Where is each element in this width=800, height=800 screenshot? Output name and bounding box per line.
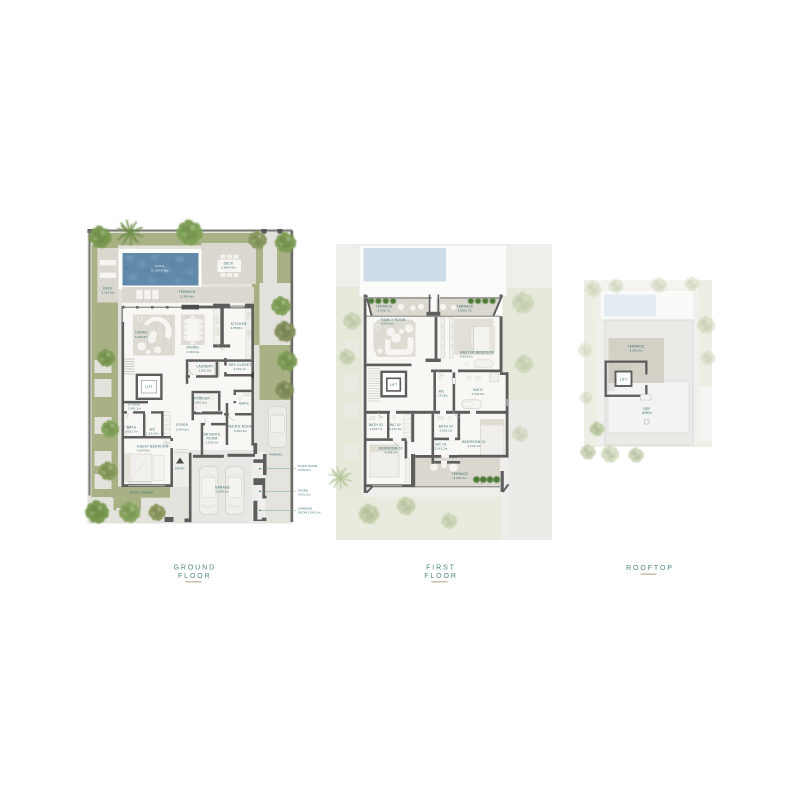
svg-text:3.1X1.8m: 3.1X1.8m (102, 290, 115, 294)
svg-text:2.9X2.2m: 2.9X2.2m (440, 428, 453, 432)
svg-text:4.2X4.0m: 4.2X4.0m (137, 448, 150, 452)
svg-text:2.0X1.2m: 2.0X1.2m (435, 446, 448, 450)
svg-text:4.4X3.0m: 4.4X3.0m (187, 350, 200, 354)
svg-text:BEDROOM 02: BEDROOM 02 (379, 447, 402, 451)
svg-text:4.2X4.3m: 4.2X4.3m (468, 444, 481, 448)
svg-text:DRY CLOSET: DRY CLOSET (229, 363, 252, 367)
svg-text:1.2X1.6m: 1.2X1.6m (389, 427, 402, 431)
svg-text:ROOM 1.0X1.0m: ROOM 1.0X1.0m (298, 510, 321, 514)
svg-text:LIFT: LIFT (620, 378, 628, 382)
svg-text:ROOM: ROOM (207, 436, 218, 440)
svg-text:TERRACE: TERRACE (628, 345, 645, 349)
svg-text:BATH: BATH (127, 425, 137, 429)
svg-text:PLANT ROOM: PLANT ROOM (298, 464, 318, 468)
svg-text:BEDROOM 01: BEDROOM 01 (462, 440, 485, 444)
svg-text:WC 02: WC 02 (390, 423, 401, 427)
svg-text:4.5X3.5m: 4.5X3.5m (472, 392, 485, 396)
svg-text:5.68X4.6m: 5.68X4.6m (221, 266, 236, 270)
svg-text:KITCHEN: KITCHEN (231, 322, 247, 326)
svg-text:2.0X4.5m: 2.0X4.5m (176, 427, 189, 431)
svg-text:GARAGE: GARAGE (215, 486, 230, 490)
svg-text:5.8X5.0m: 5.8X5.0m (460, 354, 473, 358)
svg-text:LIVING: LIVING (135, 331, 147, 335)
svg-text:2.0X1.7m: 2.0X1.7m (125, 429, 138, 433)
svg-text:BATH 03: BATH 03 (439, 425, 453, 429)
svg-text:GUEST BEDROOM: GUEST BEDROOM (137, 444, 169, 448)
svg-text:ROOFTOP: ROOFTOP (626, 565, 674, 572)
svg-text:FOYER: FOYER (176, 423, 189, 427)
svg-text:BATH: BATH (239, 402, 249, 406)
svg-text:3.4X3.3m: 3.4X3.3m (234, 429, 247, 433)
svg-text:1.7X1.8m: 1.7X1.8m (435, 393, 448, 397)
svg-text:STORE: STORE (298, 488, 308, 492)
svg-text:MAID'S ROOM: MAID'S ROOM (228, 425, 252, 429)
svg-text:PARKING: PARKING (270, 453, 283, 457)
svg-text:DECK: DECK (224, 262, 234, 266)
svg-text:3.5X2.0m: 3.5X2.0m (206, 440, 219, 444)
svg-text:6.3X6.3m: 6.3X6.3m (216, 490, 229, 494)
svg-text:6.2X1.7m: 6.2X1.7m (378, 308, 391, 312)
svg-text:3.85X5m: 3.85X5m (231, 326, 243, 330)
svg-text:5.0X5.8m: 5.0X5.8m (135, 335, 148, 339)
svg-text:DINING: DINING (187, 346, 200, 350)
svg-text:ENTRY: ENTRY (175, 467, 185, 471)
svg-text:FRONT GARDEN: FRONT GARDEN (130, 491, 153, 495)
svg-text:LIFT: LIFT (145, 385, 153, 389)
svg-text:8.9X2.3m: 8.9X2.3m (454, 476, 467, 480)
svg-text:GROUND: GROUND (174, 564, 217, 571)
svg-text:2.5X1.6m: 2.5X1.6m (194, 401, 207, 405)
svg-text:11.9X3.4m: 11.9X3.4m (180, 295, 195, 299)
svg-text:6.0X4.2m: 6.0X4.2m (381, 322, 394, 326)
svg-text:TERRACE: TERRACE (457, 305, 474, 309)
svg-text:TERRACE: TERRACE (452, 472, 469, 476)
svg-text:FIRST: FIRST (426, 564, 456, 571)
svg-text:POOL: POOL (155, 264, 165, 268)
svg-text:LAUNDRY: LAUNDRY (197, 365, 215, 369)
svg-text:FLOOR: FLOOR (424, 573, 458, 580)
svg-text:2.2X1.4m: 2.2X1.4m (234, 367, 247, 371)
svg-text:6.08X1.7m: 6.08X1.7m (458, 308, 473, 312)
svg-text:AREA: AREA (642, 411, 652, 415)
svg-text:2.0X2.7m: 2.0X2.7m (370, 427, 383, 431)
svg-text:1.2X1.6m: 1.2X1.6m (146, 432, 159, 436)
svg-text:MASTER BEDROOM: MASTER BEDROOM (460, 351, 494, 355)
svg-text:FLOOR: FLOOR (178, 573, 212, 580)
svg-text:4.0X1.0m: 4.0X1.0m (298, 492, 311, 496)
svg-text:TERRACE: TERRACE (179, 290, 196, 294)
svg-text:WC 03: WC 03 (436, 443, 447, 447)
svg-text:WC: WC (150, 428, 156, 432)
svg-text:WC: WC (439, 390, 445, 394)
svg-text:4.0X2.0m: 4.0X2.0m (298, 468, 311, 472)
svg-text:2.8X1.8m: 2.8X1.8m (199, 369, 212, 373)
svg-text:LIFT: LIFT (390, 383, 398, 387)
svg-text:TERRACE: TERRACE (376, 305, 393, 309)
svg-text:2.9X1.2m: 2.9X1.2m (128, 407, 141, 411)
svg-text:BATH 02: BATH 02 (369, 423, 383, 427)
svg-text:FAMILY ROOM: FAMILY ROOM (381, 318, 406, 322)
svg-text:9.0X6.0m: 9.0X6.0m (630, 349, 643, 353)
svg-text:POWDER: POWDER (194, 397, 210, 401)
svg-text:GARBAGE: GARBAGE (298, 506, 312, 510)
svg-text:BATH: BATH (473, 388, 483, 392)
svg-text:DECK: DECK (103, 287, 113, 291)
svg-text:8.19X4.0m: 8.19X4.0m (151, 269, 168, 273)
svg-text:4.2X4.0m: 4.2X4.0m (385, 450, 398, 454)
